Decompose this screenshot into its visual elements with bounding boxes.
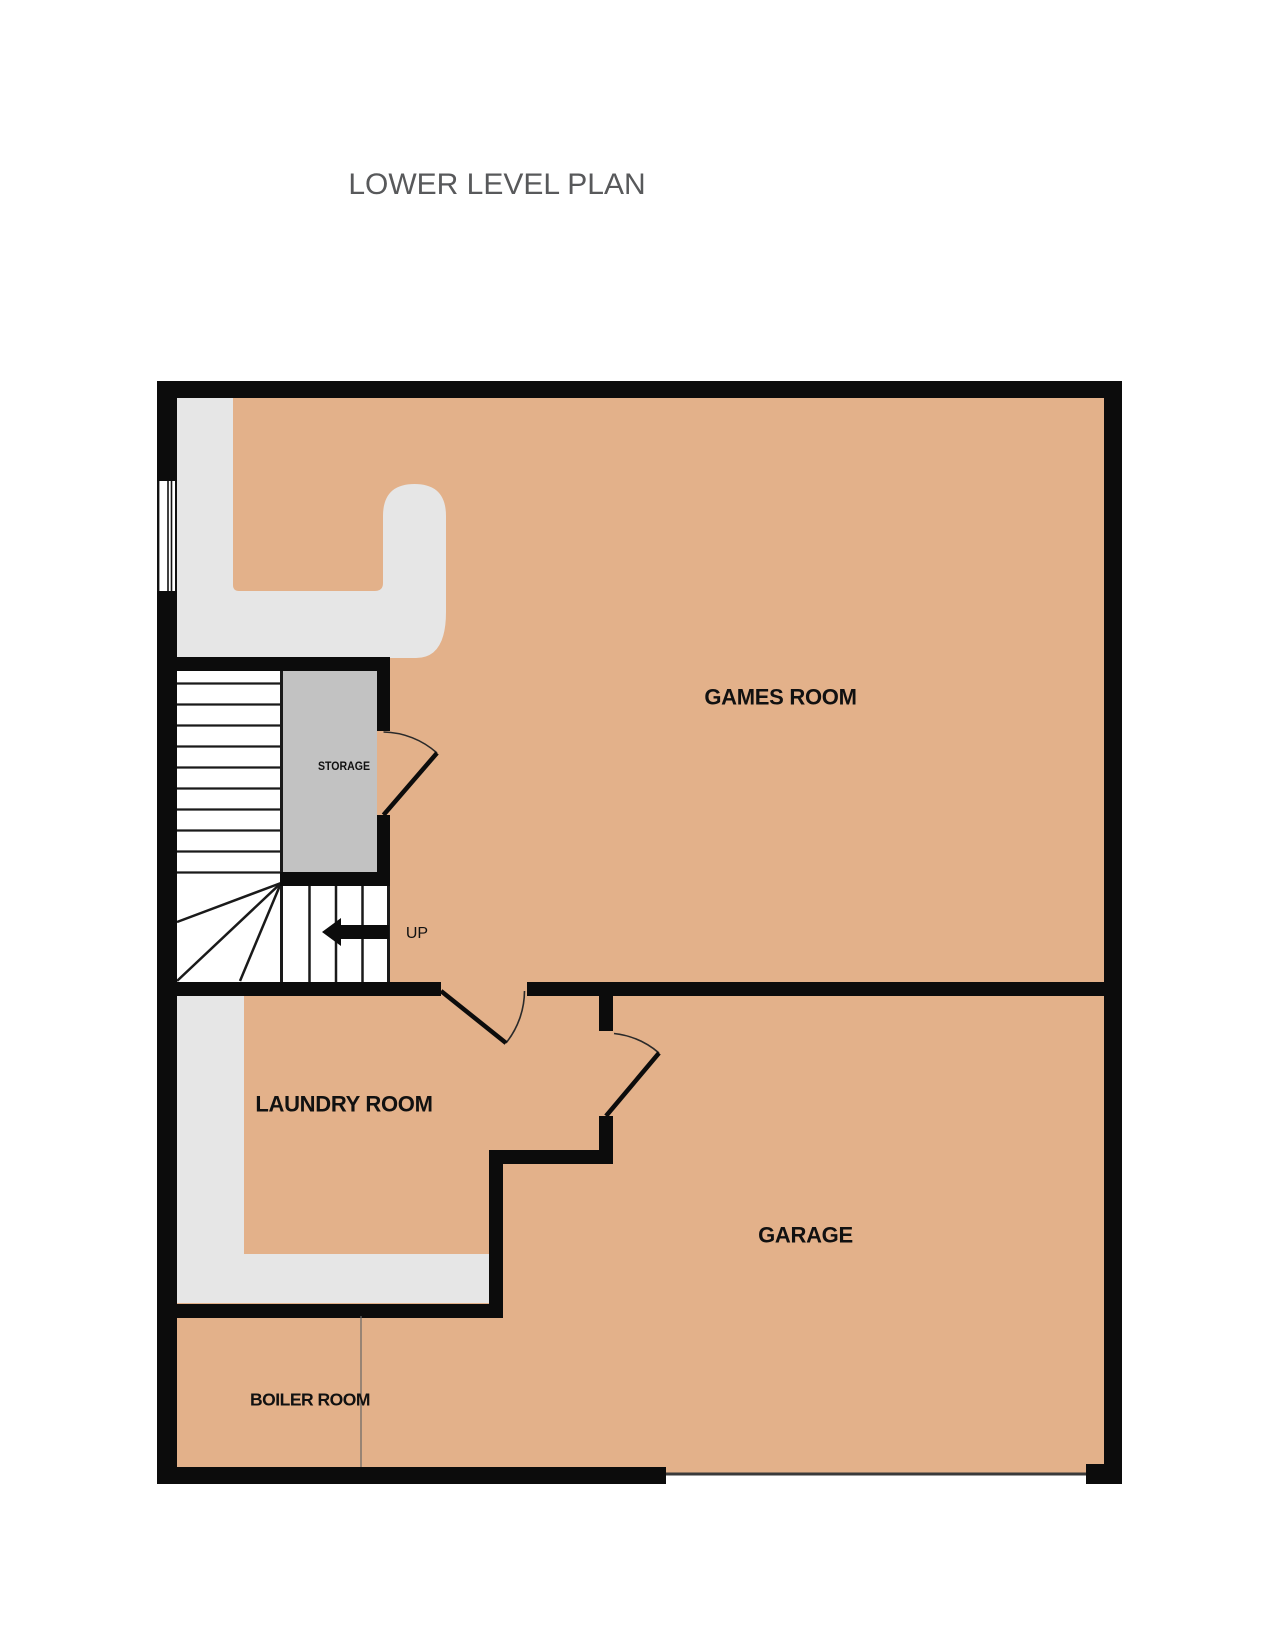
svg-text:GAMES ROOM: GAMES ROOM bbox=[704, 685, 856, 710]
svg-text:LOWER LEVEL PLAN: LOWER LEVEL PLAN bbox=[348, 168, 645, 201]
svg-text:BOILER ROOM: BOILER ROOM bbox=[250, 1390, 370, 1410]
svg-text:UP: UP bbox=[406, 925, 428, 942]
svg-text:STORAGE: STORAGE bbox=[318, 760, 370, 773]
svg-text:GARAGE: GARAGE bbox=[758, 1223, 853, 1248]
svg-text:LAUNDRY ROOM: LAUNDRY ROOM bbox=[255, 1092, 432, 1117]
